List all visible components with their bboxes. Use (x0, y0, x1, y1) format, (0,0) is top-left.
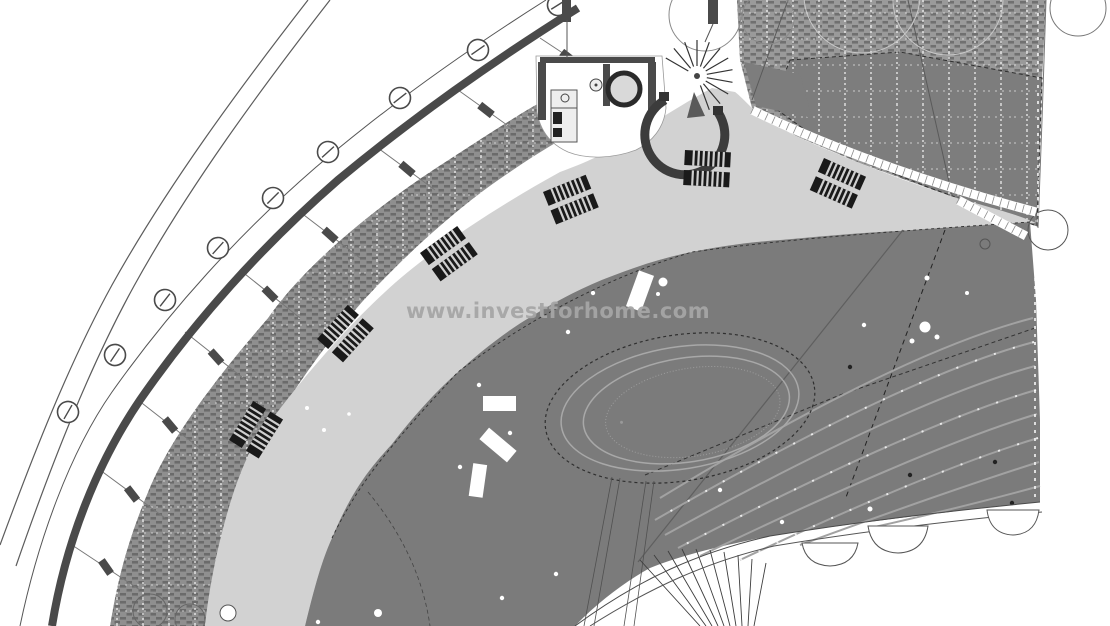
tree-outline-icon (669, 0, 741, 51)
deck-circle-marker (220, 605, 236, 621)
round-table-icon (608, 73, 640, 105)
kiosk-fixture (553, 128, 562, 137)
kiosk-fixture (553, 112, 562, 124)
top-wall-stub (562, 0, 571, 22)
tree-outline-icon (1050, 0, 1106, 36)
site-plan: www.investforhome.com (0, 0, 1110, 626)
spiral-hub (694, 73, 700, 79)
kiosk-wall (540, 57, 655, 63)
plan-drawing (0, 0, 1110, 626)
kiosk-wall (538, 62, 546, 120)
top-wall-stub (708, 0, 718, 24)
